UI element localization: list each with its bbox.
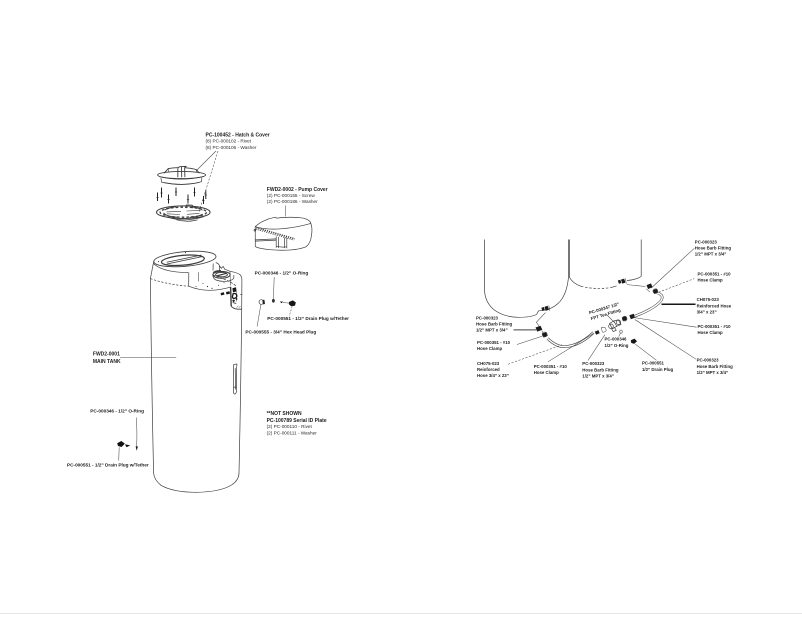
svg-text:CH075-023: CH075-023 bbox=[477, 361, 500, 366]
svg-text:PC-000323: PC-000323 bbox=[476, 315, 499, 320]
svg-text:CH075-023: CH075-023 bbox=[697, 297, 720, 302]
svg-text:1/2” MPT x 3/4”: 1/2” MPT x 3/4” bbox=[582, 374, 614, 379]
svg-text:(2) PC-000111 - Washer: (2) PC-000111 - Washer bbox=[267, 430, 318, 435]
svg-text:(2) PC-000110 - Rivet: (2) PC-000110 - Rivet bbox=[267, 424, 313, 429]
svg-text:**NOT SHOWN: **NOT SHOWN bbox=[267, 411, 302, 417]
svg-text:PC-000551 - 1/2” Drain Plug w/: PC-000551 - 1/2” Drain Plug w/Tether bbox=[267, 316, 349, 321]
svg-text:PC-000346 - 1/2” O-Ring: PC-000346 - 1/2” O-Ring bbox=[255, 271, 309, 276]
svg-text:PC-100789 Serial ID Plate: PC-100789 Serial ID Plate bbox=[267, 418, 327, 424]
svg-text:FWD2-0002 - Pump Cover: FWD2-0002 - Pump Cover bbox=[267, 187, 328, 193]
svg-text:PC-000323: PC-000323 bbox=[582, 361, 605, 366]
svg-text:Hose Clamp: Hose Clamp bbox=[698, 330, 723, 335]
svg-text:PC-000351 - #10: PC-000351 - #10 bbox=[534, 364, 568, 369]
svg-text:Hose Barb Fitting: Hose Barb Fitting bbox=[582, 367, 619, 372]
svg-text:Reinforced: Reinforced bbox=[477, 367, 500, 372]
svg-text:1/2” O-Ring: 1/2” O-Ring bbox=[605, 343, 629, 348]
svg-text:(2) PC-000186 - Washer: (2) PC-000186 - Washer bbox=[267, 199, 318, 204]
svg-text:Hose 3/4” x 23”: Hose 3/4” x 23” bbox=[477, 373, 509, 378]
svg-text:PC-000323: PC-000323 bbox=[695, 239, 718, 244]
svg-text:FWD2-0001: FWD2-0001 bbox=[93, 352, 120, 358]
svg-text:3/4” x 23”: 3/4” x 23” bbox=[697, 310, 717, 315]
svg-text:Reinforced Hose: Reinforced Hose bbox=[697, 303, 732, 308]
svg-text:(8) PC-000106 - Washer: (8) PC-000106 - Washer bbox=[206, 145, 257, 150]
svg-text:Hose Barb Fitting: Hose Barb Fitting bbox=[476, 322, 513, 327]
svg-text:(2) PC-000155 - Screw: (2) PC-000155 - Screw bbox=[267, 193, 316, 198]
svg-text:PC-000551: PC-000551 bbox=[642, 361, 665, 366]
svg-text:PC-100452 - Hatch & Cover: PC-100452 - Hatch & Cover bbox=[206, 133, 270, 139]
svg-text:Hose Barb Fitting: Hose Barb Fitting bbox=[695, 246, 732, 251]
svg-text:PC-000323: PC-000323 bbox=[697, 358, 720, 363]
svg-text:(8) PC-000102 - Rivet: (8) PC-000102 - Rivet bbox=[206, 139, 252, 144]
svg-text:Hose Barb Fitting: Hose Barb Fitting bbox=[697, 364, 734, 369]
svg-text:1/2” MPT x 3/4”: 1/2” MPT x 3/4” bbox=[695, 252, 727, 257]
svg-text:PC-000346 - 1/2” O-Ring: PC-000346 - 1/2” O-Ring bbox=[90, 409, 144, 414]
svg-text:1/2” MPT x 3/4”: 1/2” MPT x 3/4” bbox=[476, 328, 508, 333]
svg-text:1/2” Drain Plug: 1/2” Drain Plug bbox=[642, 367, 673, 372]
svg-text:PC-000346: PC-000346 bbox=[605, 337, 628, 342]
svg-text:PC-000551 - 1/2” Drain Plug w/: PC-000551 - 1/2” Drain Plug w/Tether bbox=[67, 463, 149, 468]
svg-text:Hose Clamp: Hose Clamp bbox=[698, 278, 723, 283]
svg-text:Hose Clamp: Hose Clamp bbox=[477, 346, 502, 351]
svg-text:Hose Clamp: Hose Clamp bbox=[534, 370, 559, 375]
svg-text:MAIN TANK: MAIN TANK bbox=[93, 359, 121, 365]
svg-text:1/2” MPT x 3/4”: 1/2” MPT x 3/4” bbox=[697, 370, 729, 375]
svg-text:PC-000351 - #10: PC-000351 - #10 bbox=[698, 272, 732, 277]
svg-text:PC-000555 - 3/4” Hex Head Plug: PC-000555 - 3/4” Hex Head Plug bbox=[245, 329, 316, 334]
svg-text:PC-000351 - #10: PC-000351 - #10 bbox=[477, 340, 511, 345]
svg-text:PC-000351 - #10: PC-000351 - #10 bbox=[698, 324, 732, 329]
